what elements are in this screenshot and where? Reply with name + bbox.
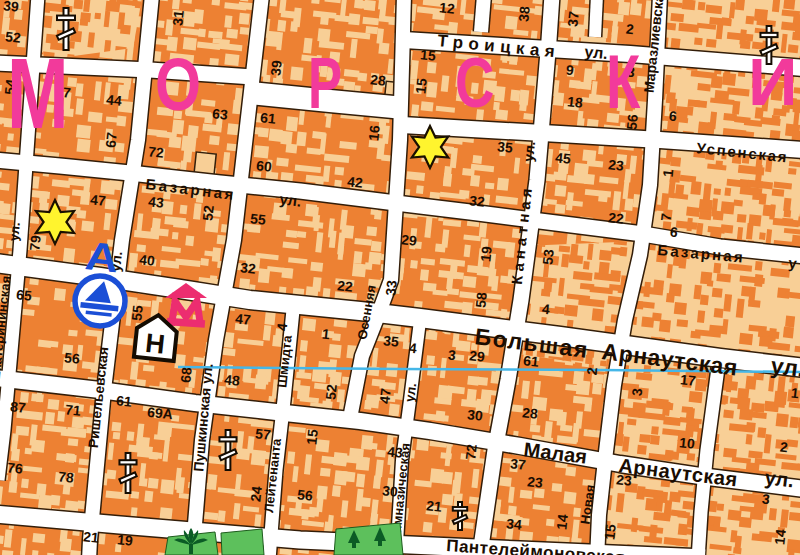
svg-text:57: 57 xyxy=(254,425,271,443)
svg-text:43: 43 xyxy=(147,193,164,211)
svg-text:ул.: ул. xyxy=(402,382,419,403)
svg-text:37: 37 xyxy=(509,455,526,473)
svg-text:23: 23 xyxy=(607,156,624,174)
svg-text:32: 32 xyxy=(468,192,485,210)
svg-text:61: 61 xyxy=(259,109,276,127)
svg-text:22: 22 xyxy=(607,209,624,227)
svg-text:23: 23 xyxy=(526,473,543,491)
svg-text:87: 87 xyxy=(9,398,26,416)
svg-text:71: 71 xyxy=(64,401,81,419)
svg-text:ул.: ул. xyxy=(584,43,609,62)
svg-text:37: 37 xyxy=(564,10,582,27)
svg-text:15: 15 xyxy=(601,523,619,540)
svg-text:43: 43 xyxy=(386,443,403,461)
svg-text:67: 67 xyxy=(102,131,120,148)
svg-text:45: 45 xyxy=(554,149,571,167)
svg-text:ул.: ул. xyxy=(279,190,303,210)
svg-text:31: 31 xyxy=(169,9,187,26)
svg-text:52: 52 xyxy=(322,383,340,400)
svg-text:39: 39 xyxy=(267,59,285,76)
svg-text:55: 55 xyxy=(249,210,266,228)
svg-text:Н: Н xyxy=(144,328,167,360)
svg-text:30: 30 xyxy=(466,406,483,424)
svg-text:14: 14 xyxy=(771,528,789,545)
svg-text:ул.: ул. xyxy=(6,221,23,241)
svg-text:61: 61 xyxy=(522,352,539,370)
svg-text:42: 42 xyxy=(346,173,363,191)
svg-text:14: 14 xyxy=(553,513,571,530)
svg-text:И: И xyxy=(748,44,798,119)
svg-text:М: М xyxy=(7,37,69,150)
svg-text:К: К xyxy=(606,39,640,124)
svg-text:34: 34 xyxy=(505,515,522,533)
svg-text:55: 55 xyxy=(128,304,146,321)
svg-text:39: 39 xyxy=(2,0,19,15)
svg-text:47: 47 xyxy=(376,387,394,404)
svg-text:21: 21 xyxy=(82,528,99,546)
svg-text:22: 22 xyxy=(336,277,353,295)
svg-text:19: 19 xyxy=(477,245,495,262)
svg-text:33: 33 xyxy=(382,279,400,296)
svg-text:О: О xyxy=(155,43,201,126)
svg-text:19: 19 xyxy=(116,531,133,549)
svg-text:17: 17 xyxy=(679,371,696,389)
svg-text:12: 12 xyxy=(438,0,455,17)
svg-text:21: 21 xyxy=(425,497,442,515)
svg-text:10: 10 xyxy=(678,434,695,452)
svg-text:29: 29 xyxy=(400,231,417,249)
svg-text:72: 72 xyxy=(462,443,480,460)
svg-text:32: 32 xyxy=(239,259,256,277)
svg-text:48: 48 xyxy=(223,371,240,389)
svg-text:28: 28 xyxy=(521,404,538,422)
svg-text:56: 56 xyxy=(296,486,313,504)
svg-text:68: 68 xyxy=(177,366,195,383)
svg-text:44: 44 xyxy=(105,91,122,109)
svg-text:ул.: ул. xyxy=(520,141,538,163)
svg-text:Р: Р xyxy=(308,42,342,123)
svg-text:30: 30 xyxy=(381,482,398,500)
svg-text:29: 29 xyxy=(468,347,485,365)
svg-text:15: 15 xyxy=(412,77,430,94)
svg-text:69А: 69А xyxy=(146,404,173,423)
svg-text:24: 24 xyxy=(247,485,265,502)
svg-text:28: 28 xyxy=(369,71,386,89)
svg-text:16: 16 xyxy=(365,124,383,141)
svg-text:61: 61 xyxy=(115,392,132,410)
svg-text:76: 76 xyxy=(6,459,23,477)
svg-text:35: 35 xyxy=(496,138,513,156)
svg-text:15: 15 xyxy=(419,46,436,64)
svg-text:78: 78 xyxy=(57,468,74,486)
svg-text:С: С xyxy=(455,43,494,121)
svg-text:15: 15 xyxy=(303,428,321,445)
svg-text:47: 47 xyxy=(89,191,106,209)
svg-text:79: 79 xyxy=(26,234,44,251)
svg-text:60: 60 xyxy=(255,157,272,175)
svg-text:52: 52 xyxy=(199,204,217,221)
svg-text:56: 56 xyxy=(63,349,80,367)
svg-text:23: 23 xyxy=(615,471,632,489)
svg-text:72: 72 xyxy=(147,143,164,161)
svg-text:63: 63 xyxy=(211,105,228,123)
svg-text:35: 35 xyxy=(382,332,399,350)
svg-text:ул.: ул. xyxy=(769,352,800,382)
svg-text:38: 38 xyxy=(515,5,533,22)
svg-text:18: 18 xyxy=(566,93,583,111)
svg-text:58: 58 xyxy=(472,291,490,308)
svg-text:47: 47 xyxy=(234,310,251,328)
svg-text:53: 53 xyxy=(539,248,557,265)
svg-text:ул.: ул. xyxy=(764,466,796,491)
svg-text:65: 65 xyxy=(15,286,32,304)
svg-text:40: 40 xyxy=(138,251,155,269)
